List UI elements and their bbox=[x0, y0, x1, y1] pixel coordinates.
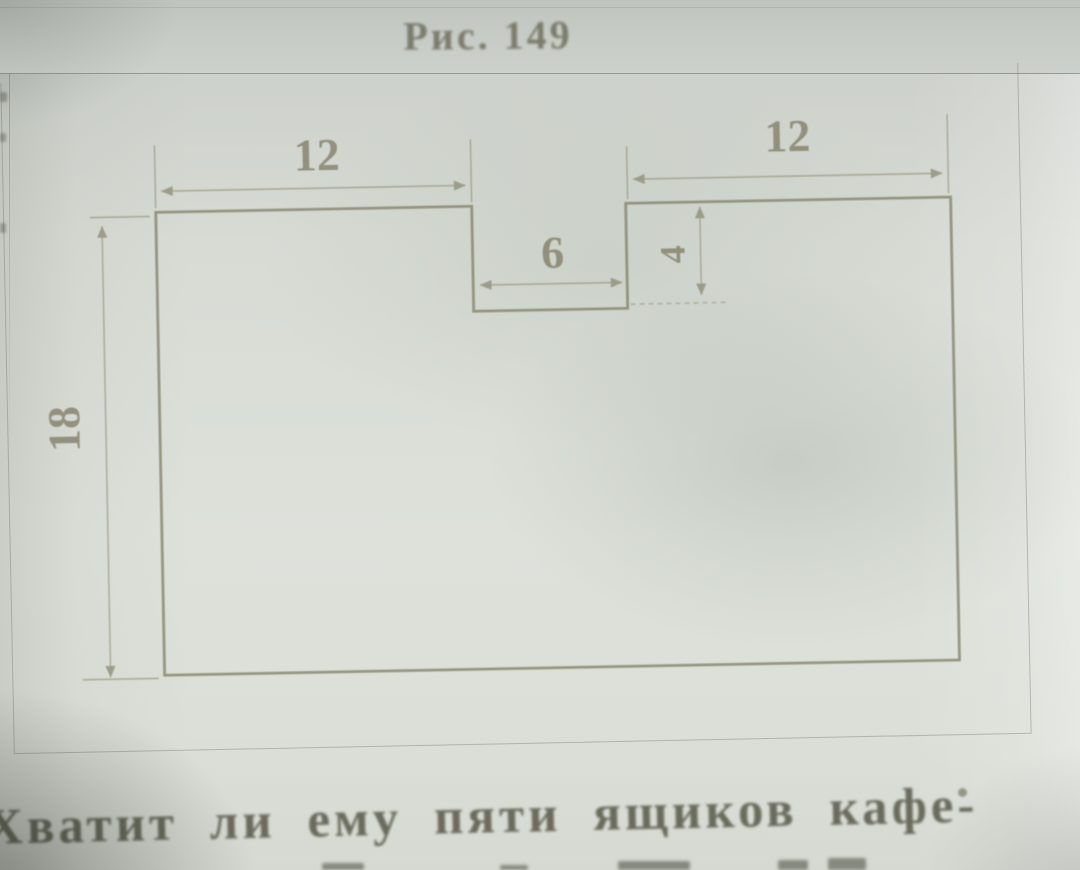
page-edge-smudge bbox=[0, 223, 6, 233]
page-edge-smudge bbox=[0, 133, 6, 142]
extension-line-right12-left bbox=[627, 146, 628, 199]
extension-line-right12-right bbox=[947, 114, 949, 193]
extension-line-height-bottom bbox=[83, 678, 159, 679]
next-line-glimpse bbox=[500, 865, 528, 870]
label-notch-depth: 4 bbox=[652, 245, 692, 264]
extension-line-height-top bbox=[90, 216, 150, 217]
label-left-top-width: 12 bbox=[293, 129, 340, 181]
textbook-page-photo: Рис. 149 12 12 bbox=[0, 0, 1080, 870]
dimension-line-right12 bbox=[633, 173, 942, 179]
dimension-line-height bbox=[102, 226, 111, 677]
paper-speck bbox=[958, 788, 967, 797]
next-line-glimpse bbox=[618, 861, 690, 870]
next-line-glimpse bbox=[778, 860, 808, 870]
label-right-top-width: 12 bbox=[764, 110, 811, 162]
next-line-glimpse bbox=[828, 858, 866, 870]
page-edge-smudge bbox=[0, 92, 7, 102]
extension-line-left12-left bbox=[154, 145, 155, 208]
label-notch-width: 6 bbox=[541, 227, 565, 278]
dimension-line-left12 bbox=[161, 185, 465, 191]
label-height: 18 bbox=[38, 406, 90, 453]
dimensioned-shape-diagram: 12 12 6 4 18 bbox=[0, 0, 1080, 870]
extension-line-left12-right bbox=[470, 139, 471, 202]
next-line-glimpse bbox=[322, 863, 364, 870]
dimension-line-notch-depth bbox=[700, 207, 702, 295]
extension-line-notch-depth bbox=[631, 302, 729, 304]
dimension-line-notch-width bbox=[480, 282, 622, 285]
